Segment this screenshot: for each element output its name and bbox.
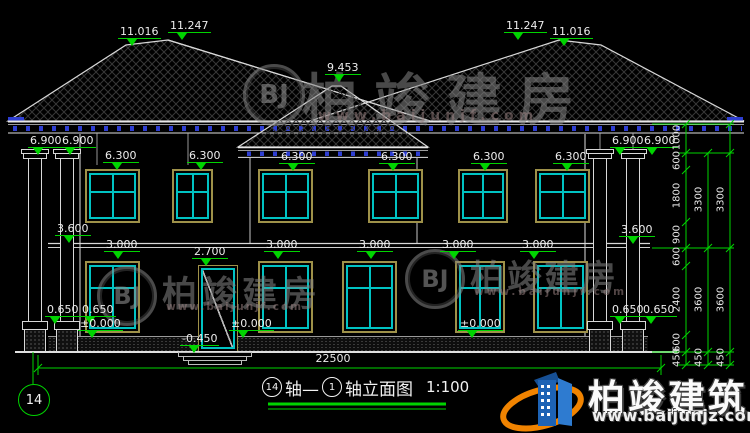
level-window-1f: 3.000: [264, 239, 300, 259]
level-text: 6.300: [187, 150, 223, 163]
level-text: 6.300: [103, 150, 139, 163]
level-triangle-icon: [628, 237, 638, 244]
level-text: 3.000: [104, 239, 140, 252]
level-triangle-icon: [647, 148, 657, 155]
level-text: ±0.000: [78, 318, 123, 331]
level-ridge: 11.247: [168, 20, 211, 40]
brand-url: www.baijunjz.com: [592, 406, 750, 425]
level-eave: 6.900: [610, 135, 646, 155]
level-triangle-icon: [177, 33, 187, 40]
level-text: 3.000: [520, 239, 556, 252]
dim-label: 3300: [693, 183, 706, 217]
level-text: 6.300: [471, 151, 507, 164]
level-ridge: 11.016: [118, 26, 161, 46]
level-window-1f: 3.000: [357, 239, 393, 259]
level-triangle-icon: [449, 252, 459, 259]
level-window-2f: 6.300: [187, 150, 223, 170]
level-triangle-icon: [65, 148, 75, 155]
level-window-2f: 6.300: [471, 151, 507, 171]
level-triangle-icon: [33, 148, 43, 155]
level-text: 0.650: [45, 304, 81, 317]
level-triangle-icon: [366, 252, 376, 259]
level-window-1f: 3.000: [520, 239, 556, 259]
dim-label: 3300: [715, 183, 728, 217]
level-text: ±0.000: [229, 318, 274, 331]
level-triangle-icon: [615, 148, 625, 155]
level-text: 3.000: [357, 239, 393, 252]
level-triangle-icon: [513, 33, 523, 40]
level-text: -0.450: [180, 333, 219, 346]
level-triangle-icon: [288, 164, 298, 171]
level-entry-step: -0.450: [180, 333, 219, 353]
level-text: 3.600: [55, 223, 91, 236]
level-text: 6.300: [553, 151, 589, 164]
brand-logo-icon: [494, 370, 590, 432]
dim-label: 600: [671, 240, 684, 274]
axis-bubble: 14: [18, 384, 50, 416]
title-scale: 1:100: [426, 378, 469, 396]
dim-label: 3600: [693, 283, 706, 317]
dim-label: 2400: [671, 283, 684, 317]
axis-bubble-number: 14: [26, 393, 43, 408]
level-text: 3.000: [264, 239, 300, 252]
level-text: ±0.000: [458, 318, 503, 331]
level-triangle-icon: [562, 164, 572, 171]
level-triangle-icon: [112, 163, 122, 170]
level-text: 0.650: [80, 304, 116, 317]
level-ground: ±0.000: [458, 318, 503, 338]
level-text: 11.016: [118, 26, 161, 39]
level-triangle-icon: [615, 317, 625, 324]
level-triangle-icon: [127, 39, 137, 46]
title-text: 轴—: [285, 375, 319, 400]
level-ridge: 11.247: [504, 20, 547, 40]
level-text: 6.300: [279, 151, 315, 164]
level-triangle-icon: [64, 236, 74, 243]
level-text: 11.016: [550, 26, 593, 39]
level-window-2f: 6.300: [279, 151, 315, 171]
drawing-title: 14 轴— 1 轴立面图 1:100: [262, 376, 469, 398]
axis-circle-1: 1: [322, 377, 342, 397]
level-text: 3.000: [440, 239, 476, 252]
level-window-1f: 3.000: [440, 239, 476, 259]
level-window-2f: 6.300: [379, 151, 415, 171]
level-text: 6.900: [28, 135, 64, 148]
level-triangle-icon: [388, 164, 398, 171]
level-triangle-icon: [467, 331, 477, 338]
level-triangle-icon: [238, 331, 248, 338]
level-triangle-icon: [559, 39, 569, 46]
level-eave: 6.900: [28, 135, 64, 155]
level-porch-peak: 9.453: [325, 62, 361, 82]
level-triangle-icon: [50, 317, 60, 324]
level-triangle-icon: [201, 259, 211, 266]
level-triangle-icon: [196, 163, 206, 170]
cad-elevation-drawing: BJ 柏竣建房 www.baijunjf.com BJ 柏竣建房 www.bai…: [0, 0, 750, 433]
level-window-2f: 6.300: [553, 151, 589, 171]
level-triangle-icon: [334, 75, 344, 82]
dim-label: 1800: [671, 179, 684, 213]
level-text: 6.900: [60, 135, 96, 148]
total-width-dimension: 22500: [303, 352, 363, 365]
level-column-base: 0.650: [45, 304, 81, 324]
level-triangle-icon: [480, 164, 490, 171]
level-text: 6.900: [610, 135, 646, 148]
level-text: 11.247: [168, 20, 211, 33]
dim-label: 3600: [715, 283, 728, 317]
level-window-2f: 6.300: [103, 150, 139, 170]
level-eave: 6.900: [60, 135, 96, 155]
level-mid-band: 3.600: [55, 223, 91, 243]
level-text: 6.300: [379, 151, 415, 164]
level-triangle-icon: [113, 252, 123, 259]
dim-label: 600: [671, 144, 684, 178]
level-ground: ±0.000: [229, 318, 274, 338]
level-triangle-icon: [87, 331, 97, 338]
level-triangle-icon: [646, 317, 656, 324]
level-window-1f: 3.000: [104, 239, 140, 259]
level-triangle-icon: [189, 346, 199, 353]
level-ground: ±0.000: [78, 318, 123, 338]
title-text: 轴立面图: [345, 375, 413, 400]
level-text: 11.247: [504, 20, 547, 33]
level-triangle-icon: [273, 252, 283, 259]
level-triangle-icon: [529, 252, 539, 259]
level-door-top: 2.700: [192, 246, 228, 266]
level-ridge: 11.016: [550, 26, 593, 46]
axis-circle-14: 14: [262, 377, 282, 397]
level-text: 2.700: [192, 246, 228, 259]
level-mid-band: 3.600: [619, 224, 655, 244]
level-text: 9.453: [325, 62, 361, 75]
level-text: 3.600: [619, 224, 655, 237]
